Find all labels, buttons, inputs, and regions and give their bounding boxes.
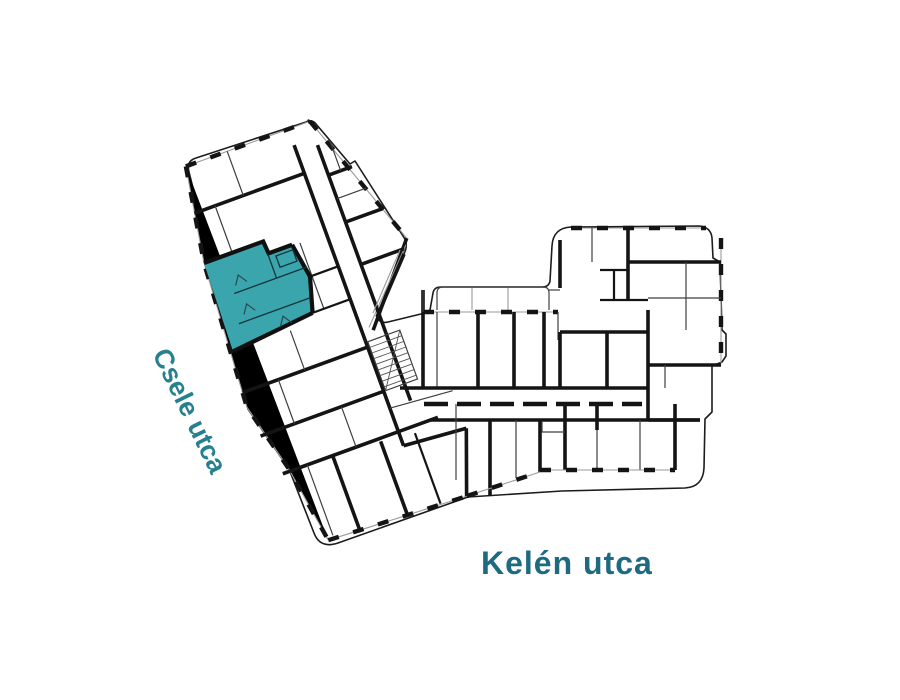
floor-plan-svg: Csele utca Kelén utca [0, 0, 900, 700]
street-label-csele-utca: Csele utca [147, 343, 234, 478]
street-label-kelen-utca: Kelén utca [481, 545, 653, 581]
floor-plan-page: Csele utca Kelén utca [0, 0, 900, 700]
